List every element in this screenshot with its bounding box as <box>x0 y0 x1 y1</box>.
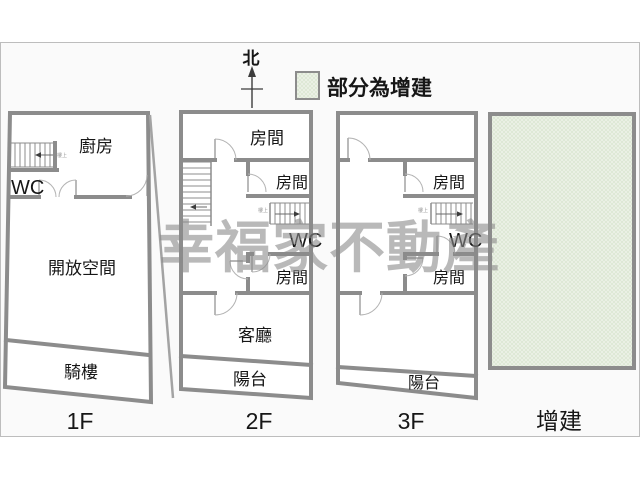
addition-area <box>490 114 634 368</box>
legend-addition-swatch <box>296 72 319 99</box>
legend: 部分為增建 <box>296 72 432 100</box>
room-label-arcade: 騎樓 <box>64 363 98 382</box>
room-label-balcony-3f: 陽台 <box>408 374 440 392</box>
room-label-living: 客廳 <box>238 326 272 345</box>
stair-note-1f: 樓上 <box>57 152 67 159</box>
floor-label-2f: 2F <box>246 408 273 434</box>
floor-label-1f: 1F <box>67 408 94 434</box>
room-label-3f-mid: 房間 <box>433 174 465 192</box>
floor1-outline <box>5 113 151 402</box>
room-label-open-space: 開放空間 <box>48 259 116 278</box>
floorplan-page: 北 部分為增建 樓上 <box>0 0 640 480</box>
floor-label-addition: 增建 <box>536 408 582 434</box>
room-label-kitchen: 廚房 <box>79 136 113 156</box>
legend-label: 部分為增建 <box>327 76 432 100</box>
stair-note-2f: 樓上 <box>258 207 268 214</box>
room-label-balcony-2f: 陽台 <box>233 370 267 389</box>
stair-note-3f: 樓上 <box>418 207 428 214</box>
floorplan-drawing: 北 部分為增建 樓上 <box>0 0 640 480</box>
room-label-2f-mid: 房間 <box>276 174 308 192</box>
room-label-wc-1f: WC <box>11 177 44 199</box>
floorplan-1f: 樓上 廚房 WC 開放空間 騎樓 1F <box>5 113 173 434</box>
room-label-2f-top: 房間 <box>250 129 284 148</box>
floor-label-3f: 3F <box>398 408 425 434</box>
compass-north-label: 北 <box>243 49 260 68</box>
watermark-text: 幸福家不動產 <box>158 216 500 279</box>
